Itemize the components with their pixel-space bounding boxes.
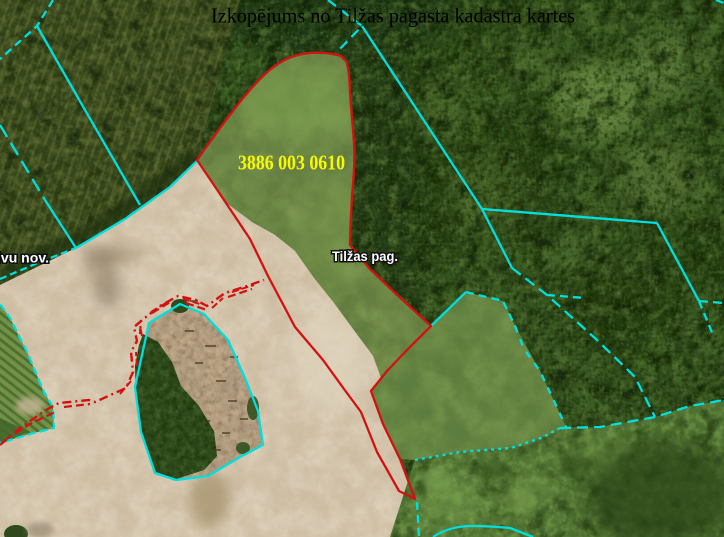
svg-text:Tilžas pag.: Tilžas pag.: [332, 249, 398, 264]
svg-text:3886 003 0610: 3886 003 0610: [238, 151, 345, 175]
svg-text:lvu nov.: lvu nov.: [0, 251, 49, 266]
svg-text:Izkopējums no Tilžas pagasta k: Izkopējums no Tilžas pagasta kadastra ka…: [211, 4, 575, 28]
